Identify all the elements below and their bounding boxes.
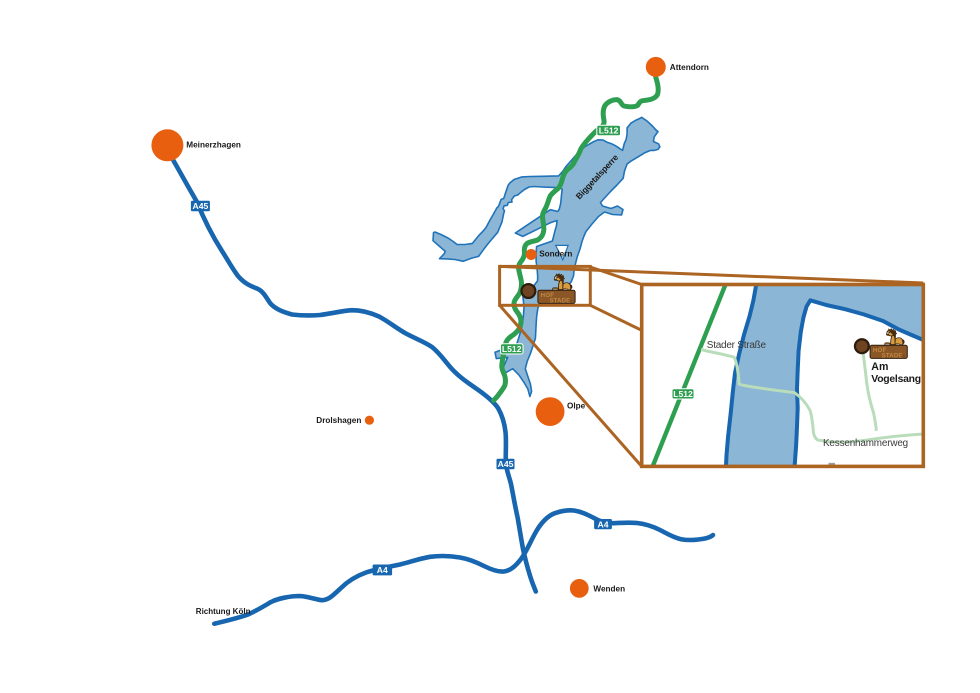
svg-text:Am: Am [871,361,888,373]
svg-text:A4: A4 [598,519,609,529]
svg-text:A45: A45 [498,459,514,469]
svg-text:A4: A4 [377,565,388,575]
svg-text:Meinerzhagen: Meinerzhagen [186,140,241,149]
svg-text:Attendorn: Attendorn [670,63,709,72]
svg-text:L512: L512 [599,126,619,136]
svg-text:Sondern: Sondern [539,250,572,259]
svg-text:Olpe: Olpe [567,402,586,411]
svg-text:Drolshagen: Drolshagen [316,416,361,425]
svg-text:Kessenhammerweg: Kessenhammerweg [823,438,908,449]
svg-text:L512: L512 [502,344,522,354]
svg-text:L512: L512 [673,389,693,399]
svg-text:A45: A45 [193,201,209,211]
svg-text:Richtung Köln: Richtung Köln [196,607,251,616]
svg-text:Vogelsang: Vogelsang [871,374,921,385]
svg-text:Wenden: Wenden [593,585,625,594]
svg-text:Stader Straße: Stader Straße [707,340,767,351]
